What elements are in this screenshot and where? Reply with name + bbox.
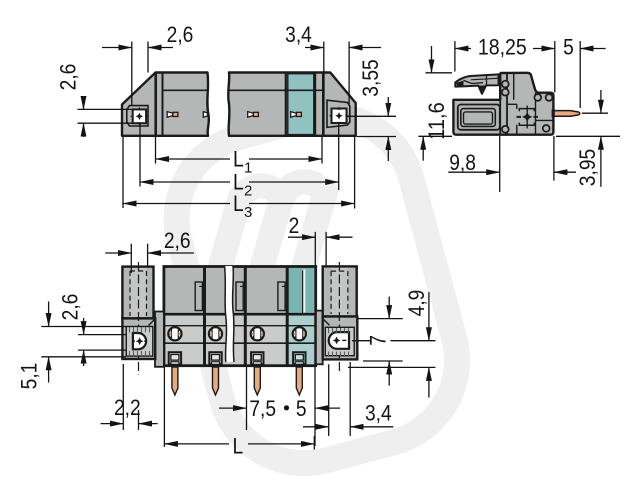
svg-text:L: L (233, 191, 244, 216)
svg-text:4,9: 4,9 (404, 290, 429, 317)
svg-text:2,6: 2,6 (164, 228, 191, 253)
svg-text:3,55: 3,55 (358, 59, 383, 96)
svg-text:5: 5 (563, 34, 574, 59)
svg-text:7: 7 (366, 335, 391, 346)
svg-text:2,2: 2,2 (114, 395, 141, 420)
svg-text:9,8: 9,8 (449, 150, 476, 175)
svg-text:3,4: 3,4 (365, 401, 392, 426)
svg-text:1: 1 (244, 160, 252, 177)
svg-text:11,6: 11,6 (424, 102, 449, 139)
svg-text:18,25: 18,25 (478, 34, 527, 59)
svg-text:L: L (233, 147, 244, 172)
svg-text:2,6: 2,6 (56, 64, 81, 91)
svg-text:3,4: 3,4 (285, 22, 312, 47)
svg-text:2: 2 (244, 183, 252, 200)
svg-text:7,5: 7,5 (249, 396, 276, 421)
svg-text:5,1: 5,1 (17, 363, 42, 390)
svg-text:3,95: 3,95 (575, 149, 600, 186)
svg-text:2,6: 2,6 (58, 294, 83, 321)
svg-text:L: L (233, 434, 244, 459)
svg-text:2: 2 (289, 213, 300, 238)
svg-text:3: 3 (244, 204, 252, 221)
svg-text:5: 5 (296, 396, 307, 421)
svg-text:2,6: 2,6 (167, 22, 194, 47)
